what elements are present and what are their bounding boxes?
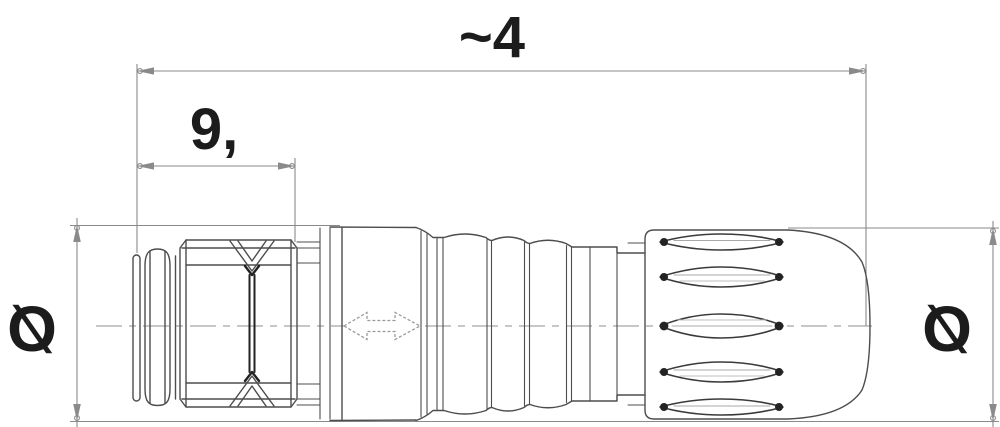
diameter-symbol-right: Ø	[922, 293, 972, 365]
corrugation-lines	[421, 231, 645, 417]
coupling-ring	[180, 240, 297, 407]
grip-slots	[660, 234, 784, 415]
front-length-label: 9,	[190, 97, 238, 162]
connector-technical-drawing: ~4 9, Ø Ø	[0, 0, 1000, 427]
drawing-canvas: ~4 9, Ø Ø	[0, 0, 1000, 427]
dimension-diameter-left	[70, 218, 340, 427]
front-rim	[133, 249, 176, 406]
cable-grip	[645, 230, 870, 419]
diameter-symbol-left: Ø	[7, 293, 57, 365]
dimension-diameter-right	[70, 221, 999, 427]
overall-length-label: ~4	[459, 5, 525, 70]
dimension-front-length	[137, 158, 295, 242]
transition-rings	[297, 228, 330, 419]
connector-body	[133, 227, 870, 421]
dimension-overall-length	[137, 64, 866, 326]
mating-direction-arrow-icon	[344, 313, 420, 340]
